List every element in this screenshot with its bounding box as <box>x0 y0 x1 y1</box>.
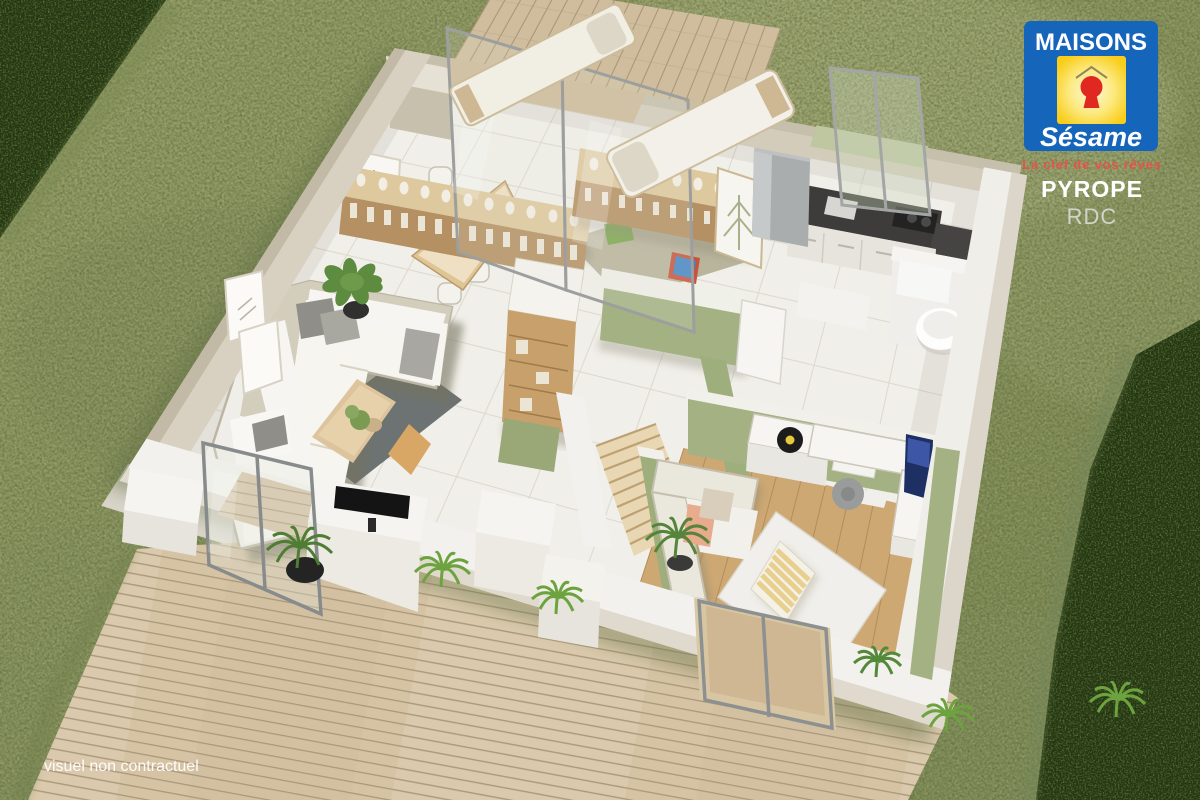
svg-text:La clef de vos rêves: La clef de vos rêves <box>1022 157 1162 172</box>
svg-text:visuel non contractuel: visuel non contractuel <box>44 758 199 775</box>
svg-text:MAISONS: MAISONS <box>1035 29 1147 56</box>
svg-text:RDC: RDC <box>1067 204 1118 229</box>
svg-text:Sésame: Sésame <box>1040 122 1142 152</box>
svg-text:PYROPE: PYROPE <box>1041 176 1143 202</box>
